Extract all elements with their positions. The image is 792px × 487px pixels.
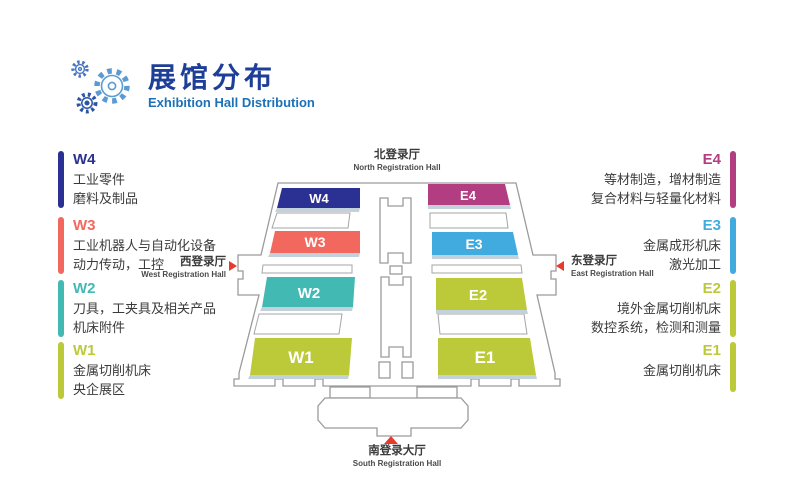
corridor-outline xyxy=(381,277,411,357)
north-entrance-en: North Registration Hall xyxy=(332,162,462,173)
legend-color-bar xyxy=(730,151,736,208)
legend-line: 数控系统，检测和测量 xyxy=(591,318,721,337)
south-entrance-en: South Registration Hall xyxy=(332,458,462,469)
hall-label-e4: E4 xyxy=(460,188,477,203)
corridor-strip xyxy=(272,213,350,228)
south-lobby-step xyxy=(330,387,370,398)
legend-color-bar xyxy=(730,217,736,274)
legend-color-bar xyxy=(58,151,64,208)
corridor-outline xyxy=(379,362,390,378)
legend-line: 金属切削机床 xyxy=(643,361,721,380)
legend-color-bar xyxy=(58,217,64,274)
legend-line: 金属切削机床 xyxy=(73,361,151,380)
legend-hall-code: W4 xyxy=(73,151,138,168)
east-entrance-en: East Registration Hall xyxy=(571,268,671,279)
legend-line: 境外金属切削机床 xyxy=(591,299,721,318)
hall-label-e3: E3 xyxy=(465,236,482,252)
legend-hall-code: E2 xyxy=(591,280,721,297)
east-entrance-arrow-icon xyxy=(556,261,564,271)
legend-color-bar xyxy=(730,280,736,337)
page-subtitle: Exhibition Hall Distribution xyxy=(148,94,315,112)
west-entrance-en: West Registration Hall xyxy=(140,269,226,280)
corridor-strip xyxy=(430,213,508,228)
legend-item-e4: E4 等材制造，增材制造 复合材料与轻量化材料 xyxy=(591,151,736,208)
west-entrance-zh: 西登录厅 xyxy=(140,255,226,269)
legend-color-bar xyxy=(58,342,64,399)
legend-line: 金属成形机床 xyxy=(643,236,721,255)
page-title: 展馆分布 xyxy=(148,62,315,94)
hall-label-w3: W3 xyxy=(305,234,326,250)
legend-item-e1: E1 金属切削机床 xyxy=(643,342,736,392)
corridor-strip xyxy=(438,314,527,334)
legend-hall-code: W2 xyxy=(73,280,216,297)
south-entrance-arrow-icon xyxy=(384,436,398,444)
header: 展馆分布 Exhibition Hall Distribution xyxy=(64,56,315,118)
legend-line: 机床附件 xyxy=(73,318,216,337)
gears-icon xyxy=(64,56,136,118)
legend-line: 央企展区 xyxy=(73,380,151,399)
legend-item-w2: W2 刀具，工夹具及相关产品 机床附件 xyxy=(58,280,216,337)
west-entrance-label: 西登录厅 West Registration Hall xyxy=(140,255,226,280)
legend-line: 等材制造，增材制造 xyxy=(591,170,721,189)
north-entrance-zh: 北登录厅 xyxy=(332,148,462,162)
hall-label-w4: W4 xyxy=(309,191,329,206)
legend-hall-code: W3 xyxy=(73,217,216,234)
legend-color-bar xyxy=(730,342,736,392)
south-lobby-step xyxy=(417,387,457,398)
north-entrance-label: 北登录厅 North Registration Hall xyxy=(332,148,462,173)
legend-hall-code: E1 xyxy=(643,342,721,359)
legend-hall-code: E3 xyxy=(643,217,721,234)
corridor-outline xyxy=(380,198,411,263)
corridor-outline xyxy=(402,362,413,378)
hall-label-w2: W2 xyxy=(298,285,321,302)
south-entrance-label: 南登录大厅 South Registration Hall xyxy=(332,444,462,469)
west-entrance-arrow-icon xyxy=(229,261,237,271)
hall-label-w1: W1 xyxy=(288,348,314,367)
legend-item-e2: E2 境外金属切削机床 数控系统，检测和测量 xyxy=(591,280,736,337)
legend-hall-code: E4 xyxy=(591,151,721,168)
legend-hall-code: W1 xyxy=(73,342,151,359)
legend-item-w1: W1 金属切削机床 央企展区 xyxy=(58,342,151,399)
corridor-strip xyxy=(432,265,522,273)
legend-line: 刀具，工夹具及相关产品 xyxy=(73,299,216,318)
south-lobby-outline xyxy=(318,398,468,436)
floor-plan-map: W4 W3 W2 W1 E4 E3 E2 E1 xyxy=(215,155,595,467)
hall-label-e2: E2 xyxy=(469,287,487,304)
hall-label-e1: E1 xyxy=(475,348,496,367)
legend-line: 工业机器人与自动化设备 xyxy=(73,236,216,255)
corridor-strip xyxy=(254,314,342,334)
corridor-outline xyxy=(390,266,402,274)
east-entrance-label: 东登录厅 East Registration Hall xyxy=(571,254,671,279)
east-entrance-zh: 东登录厅 xyxy=(571,254,671,268)
corridor-strip xyxy=(262,265,352,273)
legend-color-bar xyxy=(58,280,64,337)
legend-item-w4: W4 工业零件 磨料及制品 xyxy=(58,151,138,208)
legend-line: 磨料及制品 xyxy=(73,189,138,208)
legend-line: 复合材料与轻量化材料 xyxy=(591,189,721,208)
south-entrance-zh: 南登录大厅 xyxy=(332,444,462,458)
legend-line: 工业零件 xyxy=(73,170,138,189)
